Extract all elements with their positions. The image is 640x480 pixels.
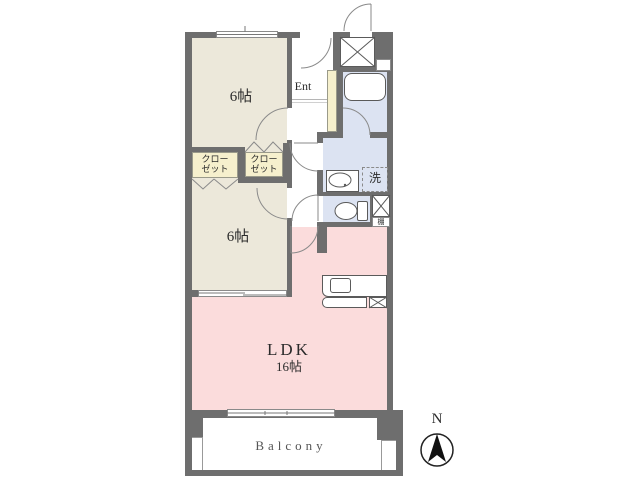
entrance-label: Ent: [288, 80, 318, 94]
laundry-label: 洗: [362, 172, 388, 186]
floor-plan: 6帖 6帖 クロー ゼット クロー ゼット Ent 洗 棚 LDK 16帖 Ba…: [0, 0, 640, 480]
ldk-label: LDK 16帖: [249, 340, 329, 374]
front-door-arc: [301, 38, 331, 68]
bedroom1-label: 6帖: [211, 89, 271, 106]
toilet-bowl: [335, 203, 357, 220]
bedroom2-label: 6帖: [208, 229, 268, 246]
meter-box-door-arc: [344, 4, 371, 31]
closet2-folding-door: [245, 142, 283, 152]
meter-box-cross: [340, 37, 375, 67]
ldk-size: 16帖: [249, 360, 329, 375]
bath-door-arc: [343, 108, 370, 135]
shelf-label: 棚: [372, 218, 390, 226]
compass-north-label: N: [427, 411, 447, 428]
bedroom1-door-arc: [256, 108, 288, 140]
closet2-line2: ゼット: [250, 164, 277, 174]
closet1-line2: ゼット: [201, 164, 228, 174]
washbasin-bowl: [329, 173, 351, 187]
closet1-label: クロー ゼット: [192, 154, 238, 175]
bedroom1-window-line: [216, 26, 278, 35]
ldk-window-line: [227, 411, 335, 415]
bedroom2-door-arc: [257, 188, 288, 219]
closet1-folding-door: [192, 179, 238, 189]
pipe-space-cross: [372, 195, 390, 217]
ldk-title: LDK: [249, 340, 329, 360]
closet2-line1: クロー: [250, 154, 277, 164]
ldk-door-arc: [291, 226, 318, 253]
balcony-label: Balcony: [231, 439, 351, 454]
closet2-label: クロー ゼット: [245, 154, 283, 175]
plan-linework: [0, 0, 640, 480]
kitchen-pipe-space-cross: [369, 297, 387, 308]
toilet-door-arc: [292, 195, 318, 221]
washroom-door-arc: [290, 143, 318, 171]
closet1-line1: クロー: [201, 154, 228, 164]
washbasin-drain: [344, 184, 346, 186]
sliding-door-lines: [198, 293, 287, 295]
